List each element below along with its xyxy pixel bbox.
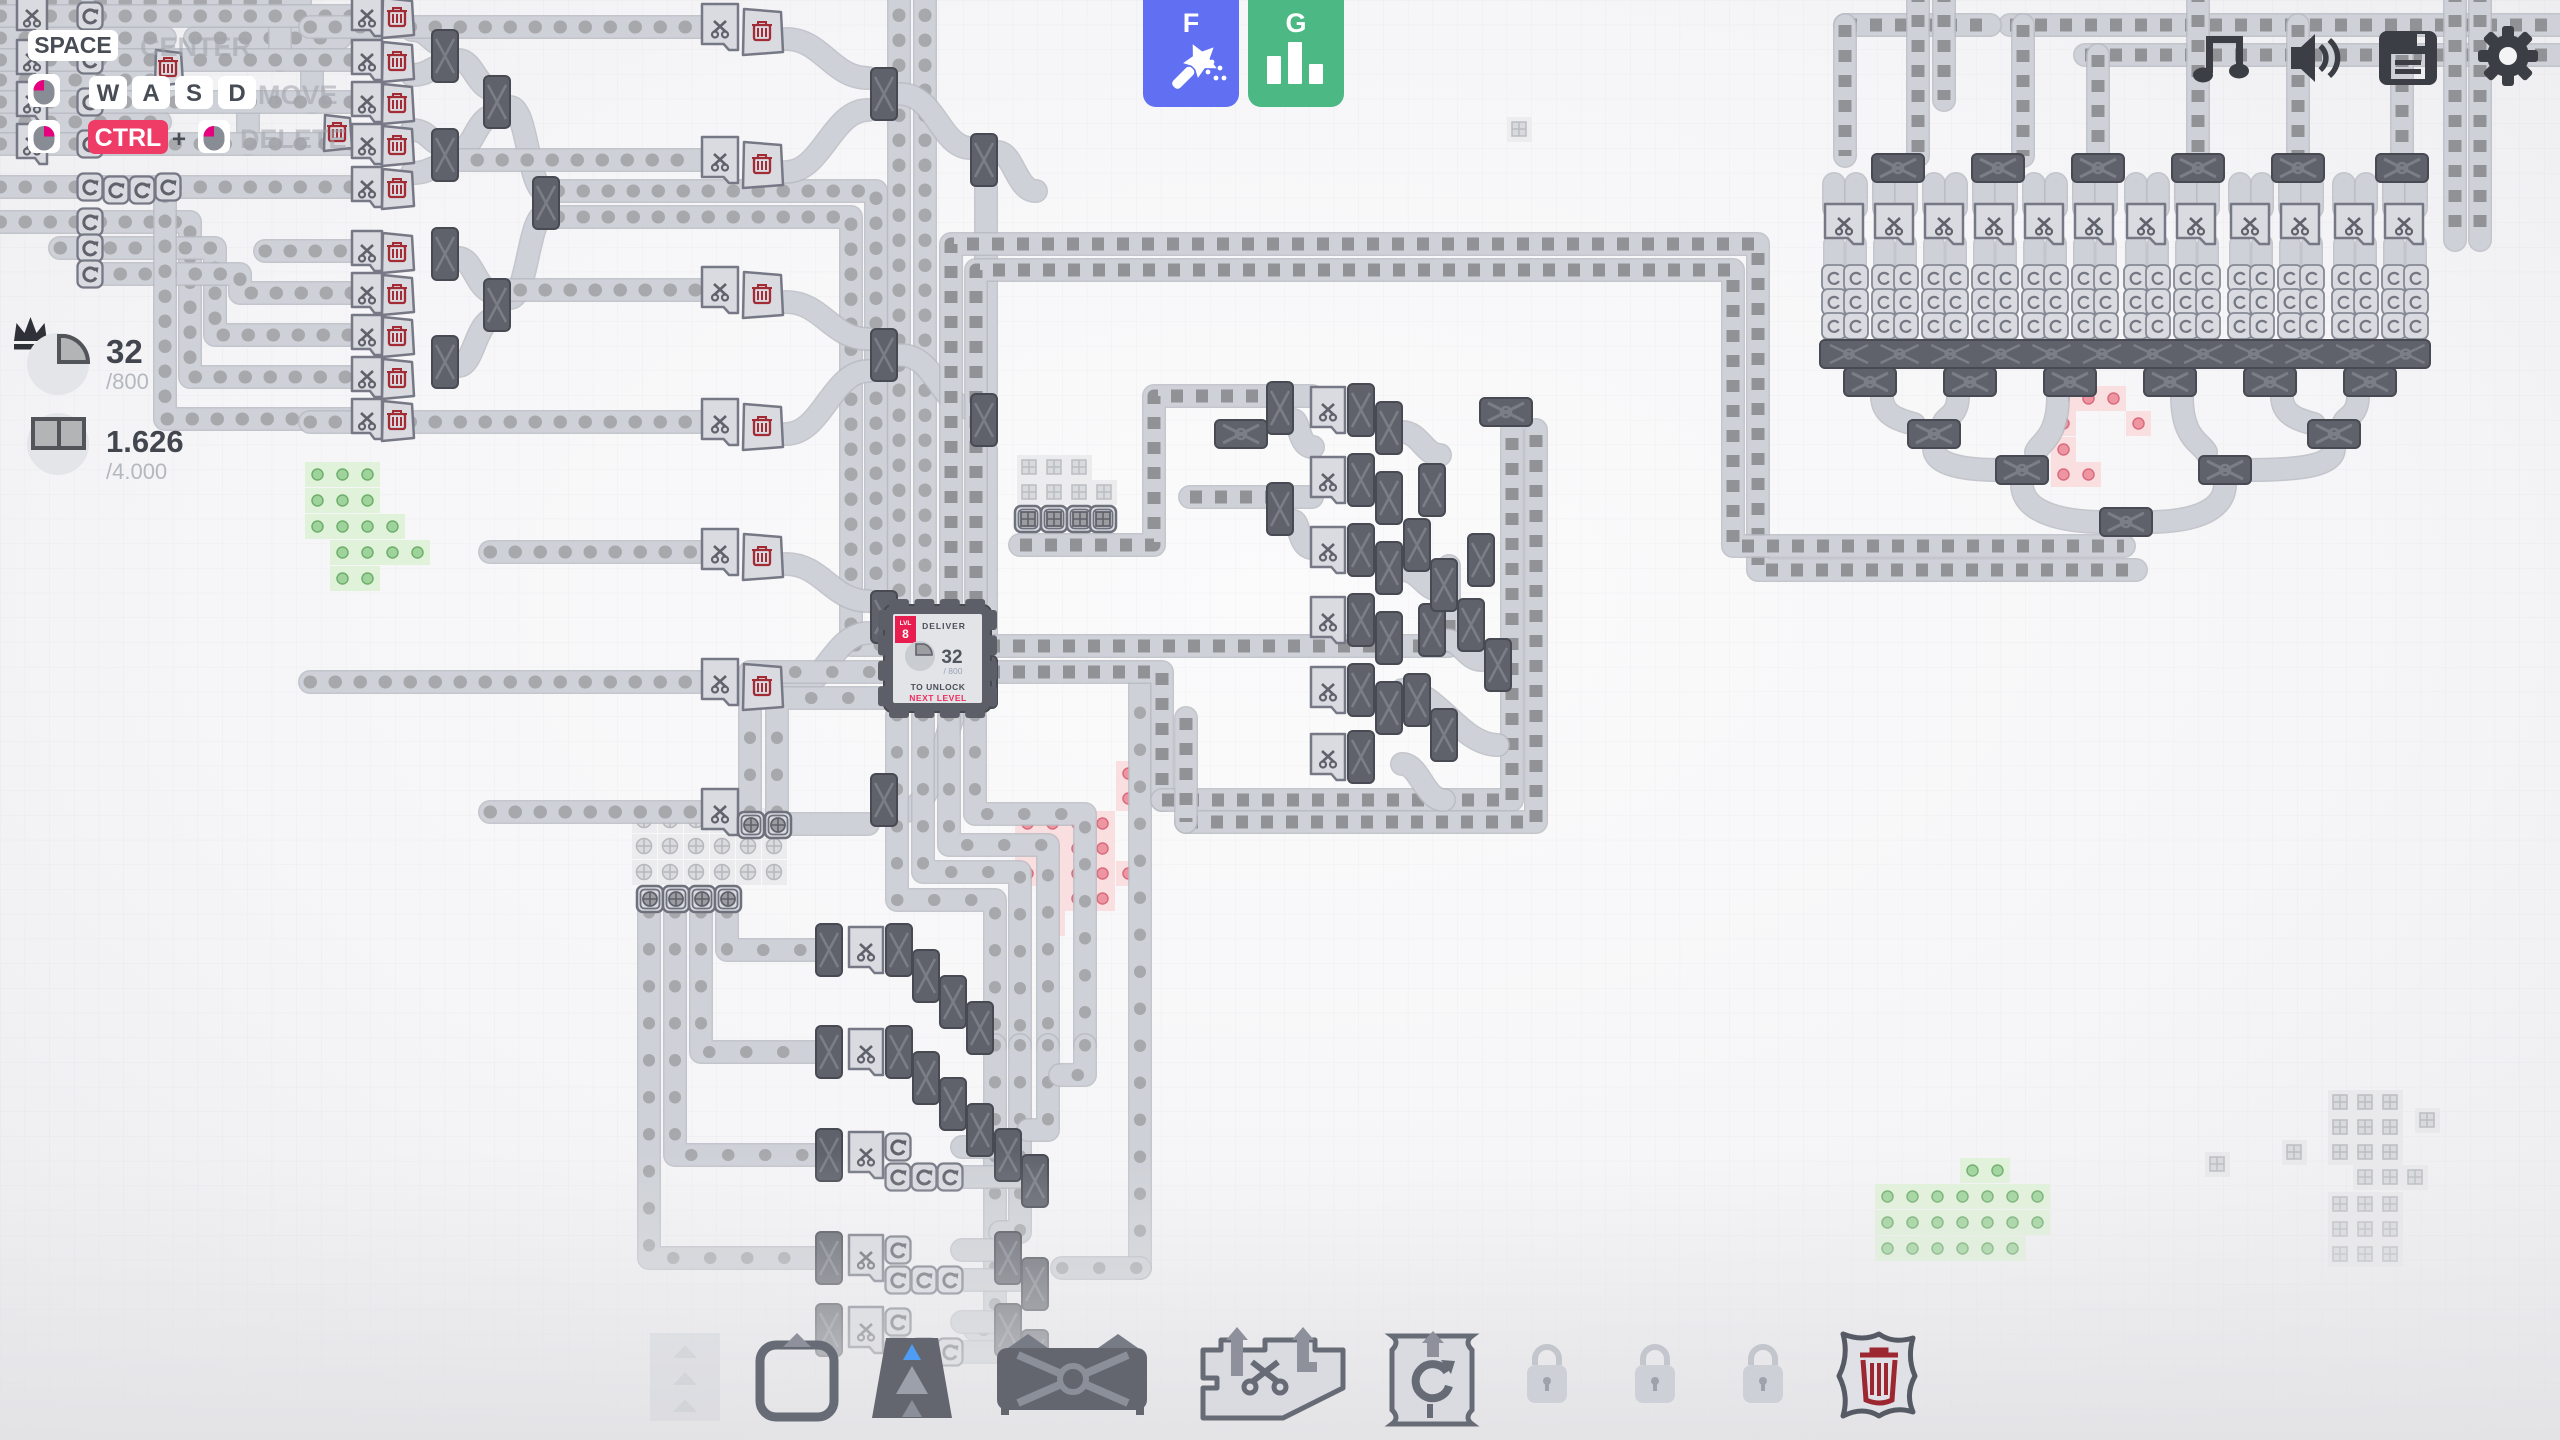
- svg-text:1.626: 1.626: [106, 424, 184, 459]
- svg-text:NEXT LEVEL: NEXT LEVEL: [909, 693, 966, 703]
- svg-text:MOVE: MOVE: [258, 80, 338, 110]
- svg-text:/4.000: /4.000: [106, 459, 167, 484]
- svg-text:8: 8: [902, 627, 909, 641]
- svg-text:SPACE: SPACE: [34, 32, 112, 58]
- svg-text:TO UNLOCK: TO UNLOCK: [911, 682, 966, 692]
- svg-text:LVL: LVL: [900, 620, 912, 627]
- svg-text:+: +: [172, 126, 186, 153]
- svg-text:F: F: [1183, 8, 1200, 38]
- svg-text:G: G: [1285, 8, 1306, 38]
- svg-text:/800: /800: [106, 369, 149, 394]
- svg-text:DELIVER: DELIVER: [922, 621, 966, 631]
- svg-text:D: D: [228, 80, 245, 107]
- svg-text:CTRL: CTRL: [95, 124, 162, 152]
- svg-text:/ 800: / 800: [944, 666, 963, 676]
- svg-text:W: W: [97, 80, 120, 107]
- svg-text:32: 32: [106, 333, 143, 370]
- svg-text:S: S: [186, 80, 202, 107]
- svg-text:A: A: [142, 80, 159, 107]
- svg-text:CENTER: CENTER: [140, 32, 251, 62]
- svg-text:DELETE: DELETE: [240, 124, 347, 154]
- svg-text:32: 32: [941, 647, 962, 668]
